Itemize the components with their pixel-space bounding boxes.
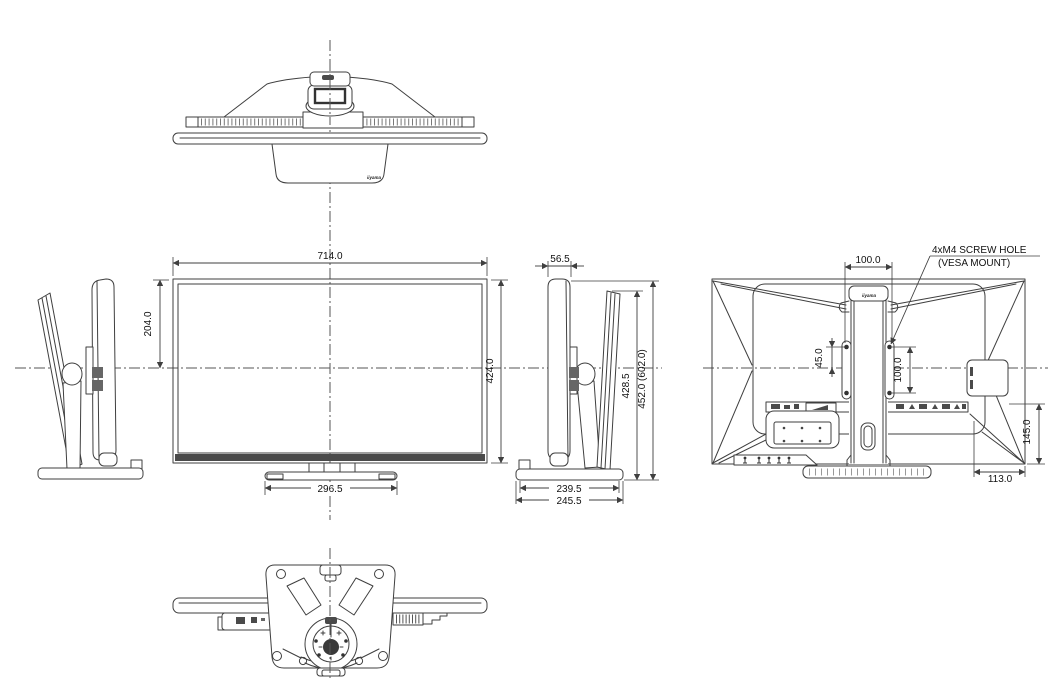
front-view: 714.0 204.0 424.0 296.5 xyxy=(143,251,508,495)
dimension-drawing-canvas: iiyama 714.0 204.0 xyxy=(0,0,1062,683)
top-view: iiyama xyxy=(173,60,487,183)
dim-label-vesa-spacing-y: 100.0 xyxy=(893,357,904,382)
stand-wing-left xyxy=(224,77,312,117)
side-connector-box xyxy=(967,360,1008,396)
stand-neck xyxy=(309,463,355,472)
connector-block-1 xyxy=(92,367,103,378)
stand-column xyxy=(63,381,81,469)
dim-side-base-depth: 239.5 xyxy=(520,481,619,495)
dim-side-depth: 56.5 xyxy=(535,254,584,277)
dim-front-base-width: 296.5 xyxy=(265,481,397,495)
vesa-annotation-line2: (VESA MOUNT) xyxy=(938,258,1010,269)
stand-wing-right xyxy=(347,77,435,117)
port-mark xyxy=(771,404,780,409)
center-lines xyxy=(15,40,1048,520)
iiyama-logo: iiyama xyxy=(367,175,382,180)
vesa-bracket xyxy=(86,347,93,394)
panel-foot xyxy=(99,453,117,466)
dim-label-front-width: 714.0 xyxy=(317,251,342,262)
vent-strip-left xyxy=(198,117,308,127)
swivel-hub xyxy=(323,639,339,655)
dim-label-side-height-total: 452.0 (602.0) xyxy=(637,349,648,409)
dim-vesa-spacing-y: 100.0 xyxy=(892,347,916,393)
vent-strip-right xyxy=(352,117,462,127)
end-cap-left xyxy=(186,117,198,127)
stand-base-front xyxy=(265,472,397,480)
dim-label-rear-connector-offset: 113.0 xyxy=(988,474,1013,485)
panel-tilted xyxy=(597,291,620,470)
connector-block-2 xyxy=(92,380,103,391)
bottom-bezel-strip xyxy=(175,454,485,461)
dim-label-side-height-tilted: 428.5 xyxy=(621,373,632,398)
vent-step xyxy=(423,613,447,624)
rear-view: iiyama 100.0 xyxy=(712,245,1045,485)
cap-slot xyxy=(322,75,334,80)
dim-front-height: 424.0 xyxy=(485,280,508,463)
dim-label-side-depth: 56.5 xyxy=(550,254,570,265)
cable-hole xyxy=(861,423,875,450)
port-mark xyxy=(251,617,257,623)
dim-rear-connector-height: 145.0 xyxy=(1009,404,1045,464)
swivel-clip xyxy=(325,617,337,624)
bottom-view xyxy=(173,548,487,681)
dim-label-side-base-depth-outer: 245.5 xyxy=(556,496,581,507)
vesa-slot-left xyxy=(842,341,851,399)
swivel-mechanism xyxy=(305,617,357,670)
dim-label-front-upper-height: 204.0 xyxy=(143,311,154,336)
dim-label-vesa-offset: 45.0 xyxy=(814,348,825,368)
port-mark xyxy=(261,618,265,621)
dim-label-front-base-width: 296.5 xyxy=(317,484,342,495)
side-box-slot xyxy=(970,380,973,389)
dim-label-front-height: 424.0 xyxy=(485,358,496,383)
dim-label-side-base-depth: 239.5 xyxy=(556,484,581,495)
base-bar xyxy=(516,469,623,480)
port-mark xyxy=(794,404,799,409)
connector-recess xyxy=(766,411,839,448)
connector-block-1 xyxy=(569,367,579,378)
port-mark xyxy=(784,405,790,409)
right-side-view: 56.5 428.5 452.0 (602.0) 239.5 245.5 xyxy=(516,254,659,507)
port-mark xyxy=(236,617,245,624)
port-bay xyxy=(222,613,273,630)
end-cap-right xyxy=(462,117,474,127)
side-box-slot xyxy=(970,367,973,376)
left-side-view xyxy=(38,279,143,479)
vesa-annotation-line1: 4xM4 SCREW HOLE xyxy=(932,245,1027,256)
dim-label-vesa-spacing-x: 100.0 xyxy=(855,255,880,266)
monitor-dimension-drawing: iiyama 714.0 204.0 xyxy=(0,0,1062,683)
connector-block-2 xyxy=(569,380,579,391)
iiyama-logo: iiyama xyxy=(862,293,877,298)
panel-foot xyxy=(550,453,568,466)
dim-vesa-offset: 45.0 xyxy=(814,338,845,377)
dim-label-rear-connector-height: 145.0 xyxy=(1022,419,1033,444)
dim-front-upper-height: 204.0 xyxy=(143,280,169,368)
base-bottom-tab xyxy=(317,668,345,676)
base-bar xyxy=(38,468,143,479)
hinge-pivot xyxy=(62,363,82,385)
stand-column xyxy=(577,381,600,468)
